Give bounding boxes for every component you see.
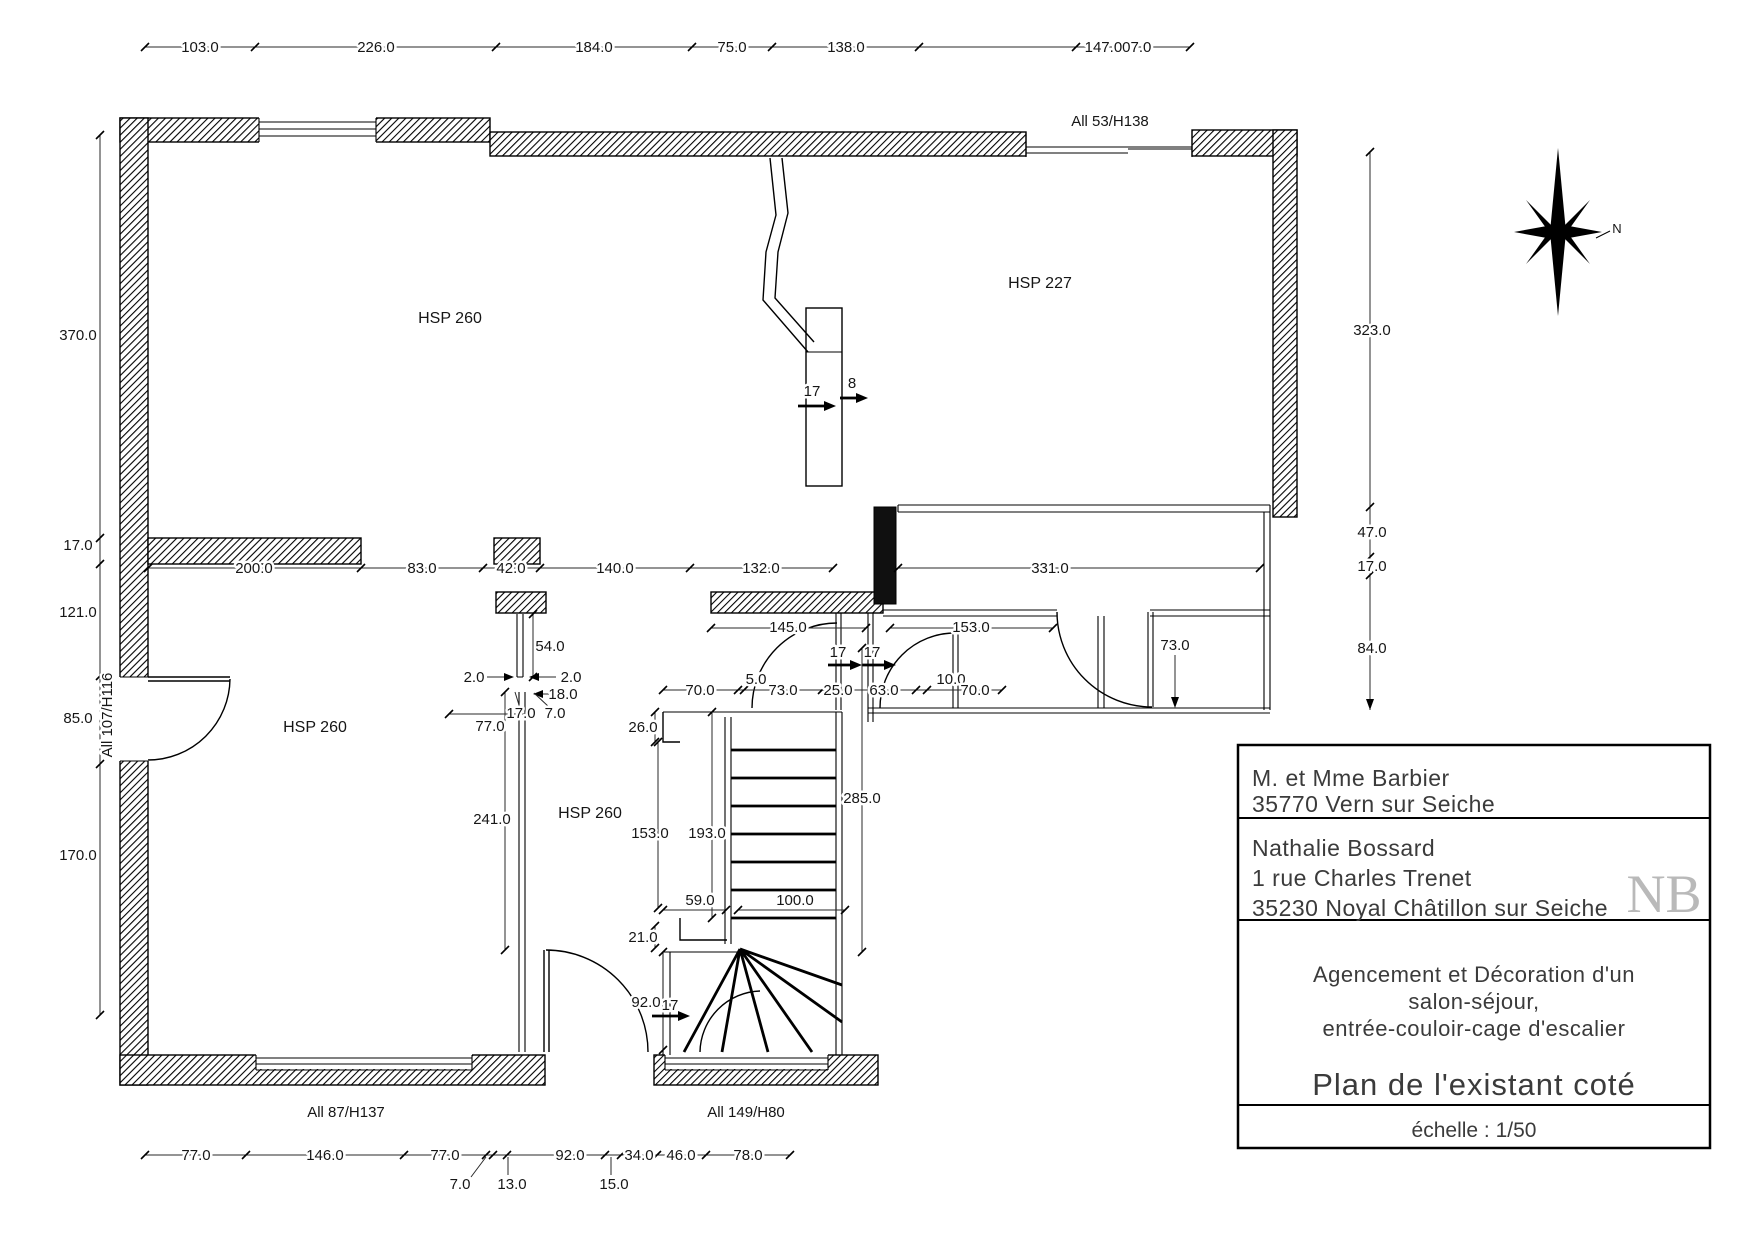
nb-logo: NB [1626,864,1701,924]
scale-label: échelle : 1/50 [1412,1119,1537,1142]
north-label: N [1612,221,1621,236]
dim-left-3: 85.0 [63,710,92,727]
flue-dim-17: 17 [804,383,821,400]
dim-right-0: 323.0 [1353,322,1391,339]
flue-dim-8: 8 [848,375,856,392]
windows [119,117,1270,1070]
dim-stair-285: 285.0 [843,790,881,807]
dim-part-18: 18.0 [548,686,577,703]
dim-corr-17a: 17 [830,644,847,661]
dim-stair-59: 59.0 [685,892,714,909]
designer-city: 35230 Noyal Châtillon sur Seiche [1252,895,1608,921]
dim-part-54: 54.0 [535,638,564,655]
door-leaf-south [544,950,549,1052]
dim-corr-v73: 73.0 [1160,637,1189,654]
dim-right-2: 17.0 [1357,558,1386,575]
chimney-flue: 17 8 [763,158,868,486]
dim-part-2b: 2.0 [561,669,582,686]
project-line-1: Agencement et Décoration d'un [1313,962,1635,987]
dim-stair-26: 26.0 [628,719,657,736]
floor-plan-drawing: 17 8 103.0 226.0 184.0 75.0 138.0 147.00… [0,0,1754,1240]
dim-mid-0: 200.0 [235,560,273,577]
dim-bottom-6: 78.0 [733,1147,762,1164]
dim-bottom-4: 34.0 [624,1147,653,1164]
dim-bottom-3: 92.0 [555,1147,584,1164]
dim-stair-92: 92.0 [631,994,660,1011]
dim-corr-row-6: 70.0 [960,682,989,699]
dim-bottom-2: 77.0 [430,1147,459,1164]
designer-street: 1 rue Charles Trenet [1252,865,1472,891]
designer-name: Nathalie Bossard [1252,835,1435,861]
opening-label-bottom-left: All 87/H137 [307,1104,385,1121]
dim-bottom-1: 146.0 [306,1147,344,1164]
opening-label-top: All 53/H138 [1071,113,1149,130]
dim-mid-5: 331.0 [1031,560,1069,577]
dim-left-4: 170.0 [59,847,97,864]
project-line-3: entrée-couloir-cage d'escalier [1323,1016,1626,1041]
top-dimension-chain: 103.0 226.0 184.0 75.0 138.0 147.007.0 [141,39,1194,56]
dim-mid-2: 42.0 [496,560,525,577]
dim-right-1: 47.0 [1357,524,1386,541]
stair-winders [684,949,842,1052]
opening-label-bottom-mid: All 149/H80 [707,1104,785,1121]
floor-plan-page: 17 8 103.0 226.0 184.0 75.0 138.0 147.00… [0,0,1754,1240]
dim-part-2a: 2.0 [464,669,485,686]
dim-corr-17b: 17 [864,644,881,661]
room-labels: HSP 260 HSP 227 HSP 260 HSP 260 All 53/H… [283,113,1149,1121]
partition-dimensions: 54.0 2.0 2.0 18.0 17.0 7.0 77.0 241.0 [445,610,581,954]
title-block: M. et Mme Barbier 35770 Vern sur Seiche … [1238,745,1710,1148]
dim-stair-100: 100.0 [776,892,814,909]
bottom-dimension-chain: 77.0 146.0 77.0 92.0 34.0 46.0 78.0 7.0 … [141,1147,794,1193]
staircase [663,712,842,1055]
door-arc-left [148,679,230,760]
dim-left-2: 121.0 [59,604,97,621]
dim-mid-4: 132.0 [742,560,780,577]
left-dimension-chain: 370.0 17.0 121.0 85.0 170.0 All 107/H116 [59,131,116,1019]
dim-corridor-153: 153.0 [952,619,990,636]
client-name: M. et Mme Barbier [1252,765,1450,791]
dim-part-241: 241.0 [473,811,511,828]
dim-stair-21: 21.0 [628,929,657,946]
dim-top-4: 138.0 [827,39,865,56]
dim-top-0: 103.0 [181,39,219,56]
dim-stair-153: 153.0 [631,825,669,842]
dim-corr-row-3: 25.0 [823,682,852,699]
dim-mid-1: 83.0 [407,560,436,577]
dim-corr-row-1: 5.0 [746,671,767,688]
dim-right-3: 84.0 [1357,640,1386,657]
room-label-sejour: HSP 227 [1008,275,1072,292]
plan-title: Plan de l'existant coté [1312,1067,1636,1102]
dim-corr-row-0: 70.0 [685,682,714,699]
dim-top-3: 75.0 [717,39,746,56]
dim-stair-17: 17 [662,997,679,1014]
corridor-dimensions: 145.0 153.0 70.0 5.0 73.0 25.0 63.0 10.0… [659,619,1190,708]
project-line-2: salon-séjour, [1408,989,1539,1014]
room-label-south: HSP 260 [558,805,622,822]
dim-top-2: 184.0 [575,39,613,56]
right-dimension-chain: 323.0 47.0 17.0 84.0 [1353,148,1391,710]
dim-left-0: 370.0 [59,327,97,344]
dim-stair-193: 193.0 [688,825,726,842]
dim-top-5: 147.007.0 [1085,39,1152,56]
dim-corr-row-2: 73.0 [768,682,797,699]
dim-part-7: 7.0 [545,705,566,722]
dim-top-1: 226.0 [357,39,395,56]
dim-bottom-5: 46.0 [666,1147,695,1164]
opening-label-left: All 107/H116 [99,673,116,758]
room-label-sw: HSP 260 [283,719,347,736]
compass-rose: N [1514,148,1622,316]
dim-left-1: 17.0 [63,537,92,554]
dim-bottom-sub-1: 13.0 [497,1176,526,1193]
dim-bottom-sub-2: 15.0 [599,1176,628,1193]
door-leaf-left [148,677,230,681]
dim-corr-row-4: 63.0 [869,682,898,699]
client-city: 35770 Vern sur Seiche [1252,791,1495,817]
dim-part-77: 77.0 [475,718,504,735]
dim-corridor-145: 145.0 [769,619,807,636]
room-label-living: HSP 260 [418,310,482,327]
stair-dimensions: 26.0 153.0 193.0 285.0 59.0 100.0 21.0 9… [628,644,880,1054]
dim-bottom-sub-0: 7.0 [450,1176,471,1193]
dim-mid-3: 140.0 [596,560,634,577]
dim-part-17: 17.0 [506,705,535,722]
dim-bottom-0: 77.0 [181,1147,210,1164]
